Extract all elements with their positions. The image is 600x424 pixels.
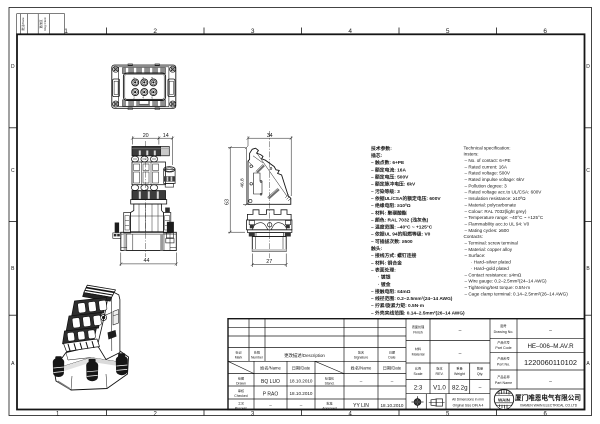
svg-text:· Hard–silver plated: · Hard–silver plated: [471, 260, 511, 265]
svg-text:–: –: [459, 328, 462, 334]
svg-text:– 表面处理:: – 表面处理:: [371, 267, 396, 274]
svg-text:Part Code: Part Code: [495, 346, 511, 350]
svg-text:6: 6: [543, 28, 547, 35]
svg-text:–: –: [300, 403, 303, 408]
svg-text:D: D: [586, 64, 590, 70]
svg-text:– 材料: 聚碳酸酯: – 材料: 聚碳酸酯: [371, 209, 407, 216]
svg-text:Part Name: Part Name: [495, 381, 512, 385]
svg-text:签名: 签名: [358, 350, 364, 355]
svg-text:数量: 数量: [477, 366, 483, 371]
svg-text:REV.: REV.: [435, 372, 443, 376]
svg-text:1220060110102: 1220060110102: [524, 358, 577, 367]
svg-text:– 接触电阻: ≤4mΩ: – 接触电阻: ≤4mΩ: [371, 288, 411, 295]
svg-text:4: 4: [348, 28, 352, 35]
svg-text:– Flammability acc.to UL 94:: – Flammability acc.to UL 94: V0: [465, 222, 530, 227]
svg-text:– 颜色: RAL 7032 (浅灰色): – 颜色: RAL 7032 (浅灰色): [371, 216, 429, 223]
svg-text:– Material: copper alloy: – Material: copper alloy: [465, 247, 513, 252]
svg-text:Drawing No.: Drawing No.: [494, 330, 514, 334]
svg-text:– 污染等级: 3: – 污染等级: 3: [371, 188, 400, 195]
svg-text:– 依据UL 94的阻燃等级: V0: – 依据UL 94的阻燃等级: V0: [371, 231, 431, 238]
svg-text:– No. of contact: 6+PE: – No. of contact: 6+PE: [465, 158, 511, 163]
svg-text:– 温度范围: –40°C ~ +125°C: – 温度范围: –40°C ~ +125°C: [371, 224, 433, 231]
svg-text:Finish: Finish: [413, 331, 423, 335]
svg-text:表面处理: 表面处理: [412, 324, 424, 329]
svg-text:重量: 重量: [456, 366, 462, 371]
svg-text:图号: 图号: [500, 323, 506, 328]
svg-text:– Rated voltage acc.to UL/CSA: – Rated voltage acc.to UL/CSA: 600V: [465, 190, 543, 195]
svg-text:审核: 审核: [238, 388, 244, 393]
svg-text:20: 20: [143, 133, 149, 139]
svg-text:Mark: Mark: [235, 355, 243, 359]
svg-text:更改描述/Description: 更改描述/Description: [284, 352, 325, 359]
svg-text:– 线径范围: 0.2–2.5mm²(24–14 AWG): – 线径范围: 0.2–2.5mm²(24–14 AWG): [371, 295, 453, 302]
svg-text:34: 34: [267, 133, 273, 139]
svg-text:18.10.2010: 18.10.2010: [381, 403, 404, 408]
svg-text:Scale: Scale: [414, 372, 423, 376]
svg-text:材料: 材料: [415, 346, 421, 351]
svg-text:XIAMEN WAIN ELECTRICAL CO.LTD: XIAMEN WAIN ELECTRICAL CO.LTD: [520, 403, 578, 407]
svg-text:工艺: 工艺: [238, 401, 244, 406]
svg-text:V1.0: V1.0: [433, 385, 446, 392]
svg-text:技术参数:: 技术参数:: [371, 145, 392, 152]
svg-text:Contacts:: Contacts:: [464, 234, 483, 239]
svg-text:– 额定电压: 500V: – 额定电压: 500V: [371, 174, 409, 181]
svg-text:27: 27: [266, 259, 272, 265]
svg-text:63: 63: [225, 199, 231, 205]
svg-text:– Temperature range: –40°C ~: – Temperature range: –40°C ~ +125°C: [465, 215, 544, 220]
svg-text:2: 2: [153, 28, 157, 35]
svg-text:–: –: [479, 385, 482, 391]
svg-text:Date: Date: [388, 355, 395, 359]
svg-text:– 触点数: 6+PE: – 触点数: 6+PE: [371, 159, 405, 166]
svg-text:YY LIN: YY LIN: [353, 403, 369, 409]
svg-text:Weight: Weight: [454, 372, 465, 376]
svg-text:– 额定电流: 16A: – 额定电流: 16A: [371, 166, 406, 173]
svg-text:– Insulation resistance: ≥108: – Insulation resistance: ≥108Ω: [465, 196, 527, 202]
svg-text:– Contact resistance: ≤4mΩ: – Contact resistance: ≤4mΩ: [465, 272, 522, 277]
svg-text:1: 1: [64, 28, 68, 35]
svg-text:Number: Number: [251, 355, 264, 359]
svg-text:批准: 批准: [326, 401, 332, 406]
svg-text:3: 3: [251, 28, 255, 35]
svg-text:– 拧紧/旋紧力矩: 0.5N·m: – 拧紧/旋紧力矩: 0.5N·m: [371, 302, 424, 309]
svg-text:产品名称: 产品名称: [497, 374, 509, 379]
svg-text:All Dimensions in mm: All Dimensions in mm: [452, 398, 484, 402]
svg-text:Reg Clerk: Reg Clerk: [43, 17, 47, 31]
svg-text:厦门唯恩电气有限公司: 厦门唯恩电气有限公司: [514, 393, 581, 402]
svg-text:2:3: 2:3: [414, 385, 423, 392]
svg-text:–: –: [549, 328, 552, 334]
svg-text:– Mating cycles: ≥500: – Mating cycles: ≥500: [465, 228, 510, 233]
svg-text:– Terminal: screw terminal: – Terminal: screw terminal: [465, 241, 518, 246]
svg-text:HE–006–M.AV.R: HE–006–M.AV.R: [527, 343, 574, 350]
svg-text:Material: Material: [412, 353, 425, 357]
svg-text:– 材料: 铜合金: – 材料: 铜合金: [371, 259, 402, 266]
svg-text:Qty.: Qty.: [477, 372, 483, 376]
svg-text:Approved: Approved: [322, 406, 337, 410]
svg-text:Insters:: Insters:: [464, 152, 479, 157]
svg-text:–: –: [549, 379, 552, 385]
svg-text:D: D: [11, 64, 15, 70]
svg-text:C: C: [11, 168, 15, 174]
svg-text:–: –: [360, 379, 363, 384]
svg-text:– Cage clamp terminal: 0.14–2: – Cage clamp terminal: 0.14–2.5mm²(26–14…: [465, 291, 569, 296]
svg-text:Stand.: Stand.: [325, 381, 335, 385]
svg-text:批注/Date: 批注/Date: [20, 17, 25, 31]
svg-text:Technical specification:: Technical specification:: [464, 145, 511, 150]
svg-text:绘图: 绘图: [238, 376, 244, 381]
svg-text:· Hard–gold plated: · Hard–gold plated: [471, 266, 509, 271]
svg-text:– Material: polycarbonate: – Material: polycarbonate: [465, 202, 517, 207]
svg-text:46.8: 46.8: [240, 178, 246, 188]
svg-text:18.10.2010: 18.10.2010: [290, 391, 313, 396]
svg-text:标准化: 标准化: [325, 376, 334, 381]
svg-text:P RAO: P RAO: [263, 391, 279, 397]
svg-text:– 绝缘电阻: ≥108Ω: – 绝缘电阻: ≥108Ω: [371, 202, 411, 209]
svg-text:18.10.2010: 18.10.2010: [290, 379, 313, 384]
svg-text:处数: 处数: [254, 350, 260, 355]
svg-text:–: –: [269, 403, 272, 408]
svg-text:Checked: Checked: [234, 394, 247, 398]
svg-text:Port No.: Port No.: [497, 363, 510, 367]
svg-text:Process: Process: [235, 406, 248, 410]
svg-text:产品料号: 产品料号: [497, 356, 509, 361]
svg-text:C: C: [586, 168, 590, 174]
svg-text:– Rated current: 16A: – Rated current: 16A: [465, 164, 508, 169]
svg-text:14: 14: [163, 133, 169, 139]
svg-text:Drawn: Drawn: [236, 381, 246, 385]
svg-text:日期: 日期: [389, 350, 395, 355]
svg-text:– 接线方式: 螺钉连接: – 接线方式: 螺钉连接: [371, 252, 417, 259]
svg-text:– Tightening/test torque: 0.5: – Tightening/test torque: 0.5N·m: [465, 285, 531, 290]
svg-text:插芯:: 插芯:: [371, 152, 383, 159]
svg-text:产品代号: 产品代号: [497, 340, 509, 345]
svg-text:44: 44: [144, 258, 150, 264]
svg-text:– Rated impulse voltage: 6kV: – Rated impulse voltage: 6kV: [465, 177, 526, 182]
svg-text:版本: 版本: [436, 366, 442, 371]
svg-text:Original Size DIN A 4: Original Size DIN A 4: [453, 404, 484, 408]
svg-text:– 额定脉冲电压: 6kV: – 额定脉冲电压: 6kV: [371, 181, 416, 188]
svg-text:– 依据UL/CSA的额定电压: 600V: – 依据UL/CSA的额定电压: 600V: [371, 195, 441, 202]
svg-text:· 镀金: · 镀金: [378, 281, 391, 288]
svg-text:标记: 标记: [235, 350, 241, 355]
svg-text:– 外壳夹线范围: 0.14–2.5mm²(26–14 AW: – 外壳夹线范围: 0.14–2.5mm²(26–14 AWG): [371, 309, 465, 316]
svg-text:WAIN: WAIN: [498, 398, 511, 403]
svg-text:BQ LUO: BQ LUO: [261, 379, 280, 385]
svg-text:– Rated voltage: 500V: – Rated voltage: 500V: [465, 171, 511, 176]
svg-text:比例: 比例: [415, 366, 421, 371]
svg-text:– Colour: RAL 7032(light grey: – Colour: RAL 7032(light grey): [465, 209, 527, 214]
svg-text:– Surface:: – Surface:: [465, 253, 486, 258]
svg-text:–: –: [391, 379, 394, 384]
svg-text:– Wire gauge: 0.2–2.5mm²(24–1: – Wire gauge: 0.2–2.5mm²(24–14 AWG): [465, 279, 548, 284]
svg-text:· 镀银: · 镀银: [378, 274, 391, 281]
svg-text:– Pollution degree: 3: – Pollution degree: 3: [465, 183, 508, 188]
svg-text:姓名/Name: 姓名/Name: [260, 365, 281, 372]
svg-text:– 可插拔次数: ≥500: – 可插拔次数: ≥500: [371, 238, 413, 245]
svg-text:姓名/Name: 姓名/Name: [351, 365, 372, 372]
svg-text:Signature: Signature: [354, 355, 369, 359]
svg-text:5: 5: [446, 28, 450, 35]
svg-text:–: –: [459, 351, 462, 357]
svg-text:触头:: 触头:: [370, 245, 383, 252]
svg-text:82.2g: 82.2g: [452, 385, 468, 392]
